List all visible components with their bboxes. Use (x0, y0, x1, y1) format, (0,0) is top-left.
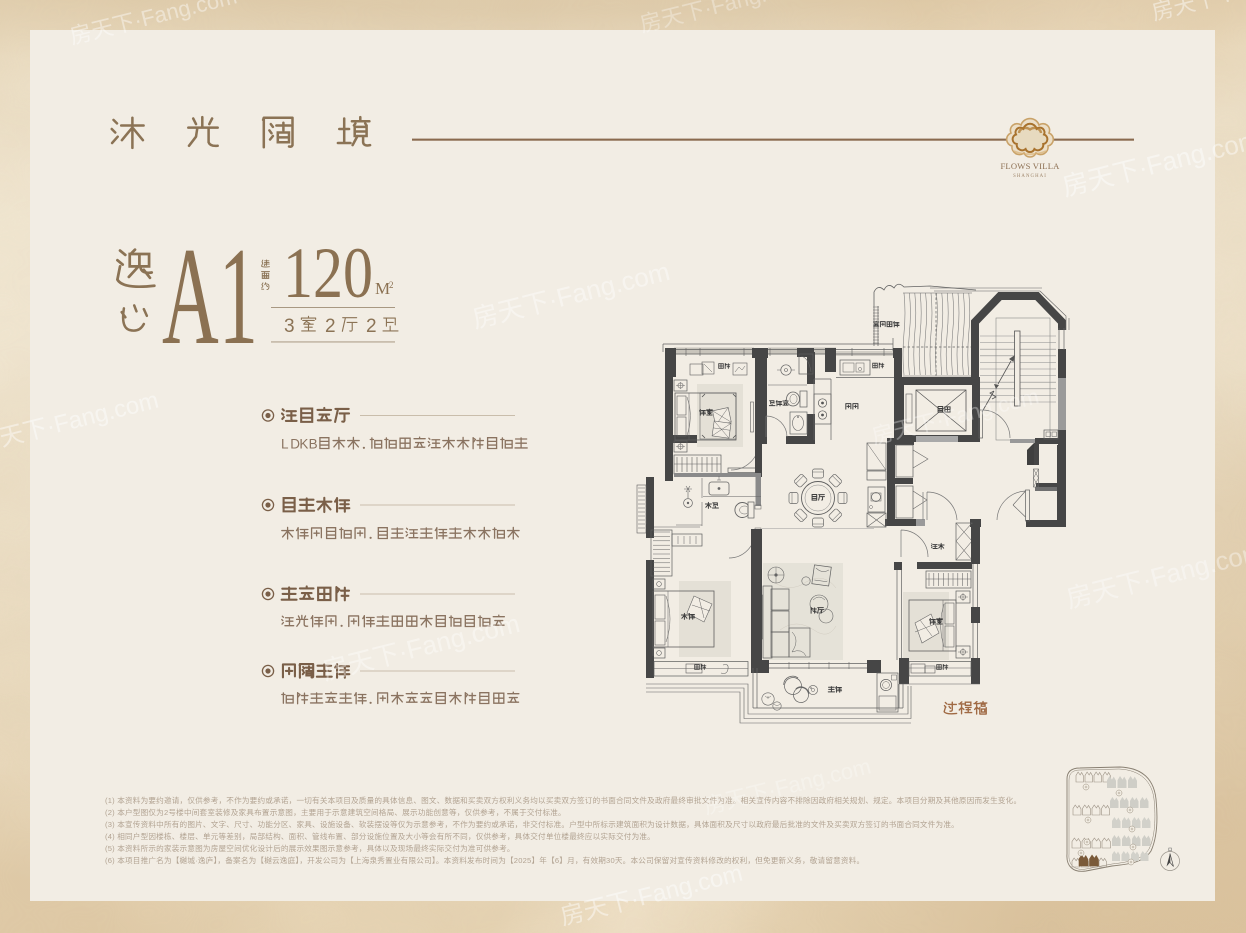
svg-text:FLOWS VILLA: FLOWS VILLA (1000, 161, 1060, 171)
svg-text:K: K (299, 436, 308, 451)
svg-text:SHANGHAI: SHANGHAI (1013, 174, 1047, 179)
svg-text:2: 2 (325, 316, 336, 337)
svg-text:L: L (281, 436, 289, 451)
svg-text:2: 2 (366, 316, 377, 337)
svg-text:M: M (375, 279, 390, 298)
svg-text:120: 120 (283, 233, 373, 313)
svg-text:3: 3 (284, 316, 295, 337)
svg-text:A1: A1 (162, 219, 258, 374)
svg-text:2: 2 (389, 280, 394, 290)
svg-text:B: B (309, 436, 318, 451)
